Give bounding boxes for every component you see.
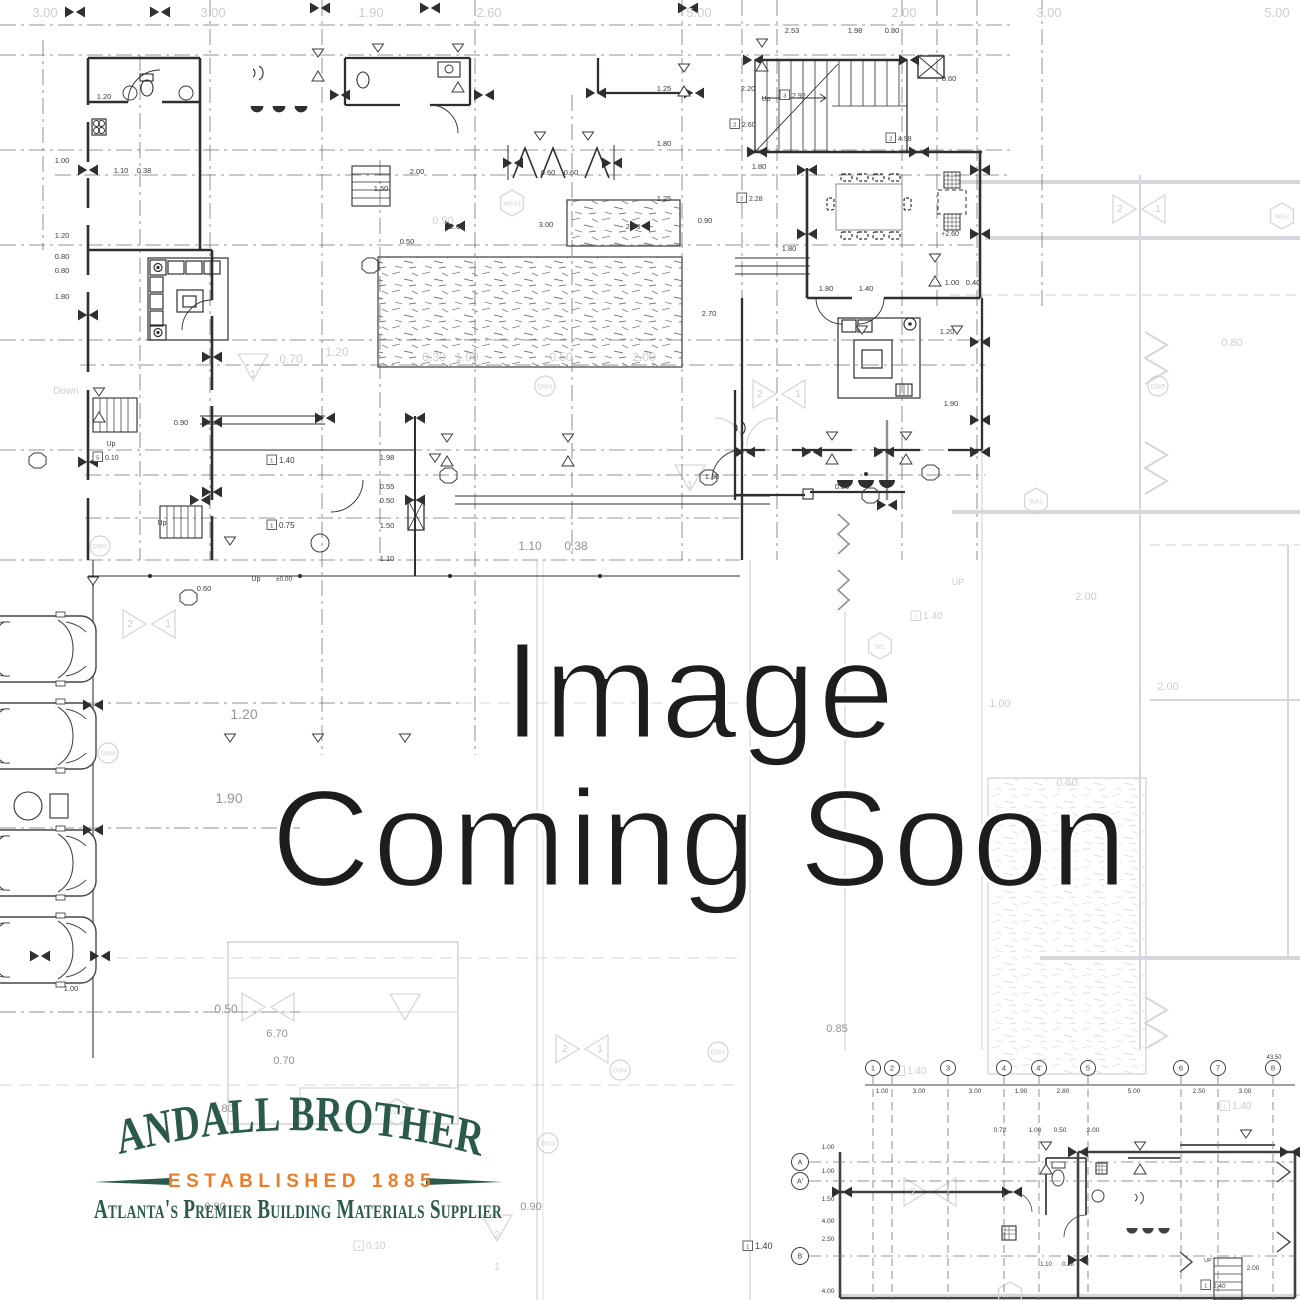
dimension-label: 3.00: [969, 1088, 982, 1095]
dimension-label: 0.38: [1062, 1262, 1074, 1268]
label-box-number: 1: [746, 1245, 749, 1251]
dimension-label: 1.90: [215, 790, 242, 806]
dimension-label: 2: [910, 1187, 916, 1198]
sitting-area-right: [838, 318, 920, 398]
logo-dash-left: [94, 1178, 170, 1185]
dimension-label: 6.70: [266, 1028, 287, 1040]
dimension-label: 1: [1155, 204, 1161, 215]
dimension-label: 1.80: [752, 162, 767, 171]
grid-column-label: 5: [1086, 1064, 1090, 1073]
dimension-label: 0.90: [698, 216, 713, 225]
dimension-label: 2.00: [1087, 1127, 1100, 1134]
logo: RANDALL BROTHERS ESTABLISHED 1885 Atlant…: [0, 0, 502, 1224]
dimension-label: 0.80: [1221, 337, 1242, 349]
placeholder-line-2: Coming Soon: [271, 762, 1129, 916]
grid-row-label: A': [797, 1179, 803, 1186]
dimension-label: 1.50: [380, 521, 395, 530]
dimension-label: 43.50: [1266, 1055, 1282, 1061]
dimension-label: 0.50: [549, 350, 573, 364]
dimension-label: 2.03: [450, 222, 465, 231]
grid-column-label: 4': [1036, 1064, 1042, 1073]
dimension-label: 4.00: [822, 1288, 835, 1295]
dimension-label: 2.60: [476, 5, 501, 20]
dimension-label: 0.60: [541, 168, 556, 177]
dimension-label: 1: [795, 389, 801, 400]
dimension-label: 2.20: [741, 84, 756, 93]
dimension-label: 1.00: [55, 156, 70, 165]
dimension-label: 1.00: [822, 1144, 835, 1151]
dimension-label: 1.40: [1232, 1101, 1252, 1112]
dimension-label: 1.80: [55, 292, 70, 301]
grid-column-label: 7: [1216, 1064, 1220, 1073]
dimension-label: 0.50: [1054, 1127, 1067, 1134]
label-box-number: 2: [889, 137, 892, 143]
dimension-label: 2.00: [891, 5, 916, 20]
grid-row-label: B: [798, 1254, 803, 1261]
dimension-label: 0.72: [994, 1127, 1007, 1134]
living-room-set: [148, 258, 228, 340]
dimension-label: 3.00: [913, 1088, 926, 1095]
dimension-label: 2.80: [1057, 1088, 1070, 1095]
grid-column-label: 4: [1002, 1064, 1006, 1073]
dimension-label: 1.40: [907, 1066, 927, 1077]
dimension-label: 0.70: [279, 352, 303, 366]
dimension-label: 1.40: [923, 611, 943, 622]
grid-column-label: 6: [1179, 1064, 1183, 1073]
dimension-label: 0.10: [105, 455, 119, 462]
dimension-label: 0.85: [826, 1023, 847, 1035]
dimension-label: 3.00: [539, 220, 554, 229]
dimension-label: 1.40: [755, 1241, 773, 1251]
dimension-label: 0.50: [380, 496, 395, 505]
dimension-label: 2: [757, 389, 763, 400]
dimension-label: 1.20: [55, 231, 70, 240]
dimension-label: 2.28: [749, 196, 763, 203]
zone-tag-label: WA2: [1275, 213, 1289, 220]
pendant-lights-secondary: [1126, 1228, 1169, 1234]
dimension-label: 0.30: [422, 350, 446, 364]
zone-tag-label: DW3: [541, 1140, 556, 1147]
dimension-label: 1: [494, 1262, 500, 1273]
dimension-label: 1.20: [940, 327, 955, 336]
dimension-label: 2.00: [1157, 681, 1178, 693]
dimension-label: 1.80: [819, 284, 834, 293]
dimension-label: 1.25: [657, 84, 672, 93]
label-box-number: 3: [783, 94, 786, 100]
zone-tag-label: WA4: [1003, 1292, 1017, 1299]
dimension-label: 0.38: [564, 539, 588, 553]
dimension-label: 1.30: [705, 472, 720, 481]
dimension-label: 2.70: [702, 309, 717, 318]
dimension-label: 0.38: [137, 166, 152, 175]
dimension-label: 1.00: [876, 1088, 889, 1095]
dimension-label: 1.10: [380, 554, 395, 563]
dimension-label: 1: [597, 1044, 603, 1055]
dimension-label: 2: [494, 1230, 500, 1241]
dimension-label: 0.55: [380, 482, 395, 491]
dimension-label: 2: [1117, 204, 1123, 215]
dimension-label: 2.00: [410, 167, 425, 176]
deck-hatch-small: [567, 200, 680, 246]
grid-column-label: 8: [1271, 1064, 1275, 1073]
label-box-number: 2: [740, 197, 743, 203]
dimension-label: UP: [1204, 1258, 1212, 1264]
dimension-label: 1.80: [657, 139, 672, 148]
placeholder-image: 3.003.001.902.605.002.003.005.000.700.30…: [0, 0, 1300, 1300]
dimension-label: Down: [53, 386, 79, 397]
dimension-label: 2.50: [822, 1236, 835, 1243]
dimension-label: 2.00: [1075, 591, 1096, 603]
dimension-label: 0.10: [366, 1241, 386, 1252]
dimension-label: 1: [687, 480, 693, 491]
label-box-number: 1: [914, 615, 917, 621]
dimension-label: 1.10: [114, 166, 129, 175]
dimension-label: 1.98: [848, 26, 863, 35]
logo-tagline: Atlanta's Premier Building Materials Sup…: [94, 1194, 502, 1224]
label-box-number: 4: [357, 1245, 360, 1251]
dimension-label: 4.00: [822, 1218, 835, 1225]
dimension-label: 0.50: [214, 1002, 238, 1016]
logo-established: ESTABLISHED 1885: [168, 1171, 436, 1192]
grid-row-label: A: [798, 1160, 803, 1167]
dimension-label: 2.60: [742, 122, 756, 129]
dimension-label: 1.10: [518, 539, 542, 553]
dimension-label: 3.00: [1036, 5, 1061, 20]
dimension-label: 1.25: [657, 194, 672, 203]
dimension-label: 1.00: [945, 278, 960, 287]
dimension-label: 0.90: [520, 1201, 541, 1213]
dimension-label: 2: [127, 619, 133, 630]
dimension-label: 1.20: [230, 706, 257, 722]
label-box-number: 1: [270, 459, 273, 465]
logo-dash-right: [426, 1178, 502, 1185]
placeholder-line-1: Image: [503, 614, 897, 768]
dimension-label: 2.00: [632, 350, 656, 364]
zone-tag-label: DW4: [613, 1067, 628, 1074]
dimension-label: 3.00: [1239, 1088, 1252, 1095]
dimension-label: 0.90: [174, 418, 189, 427]
dimension-label: Up: [252, 576, 261, 583]
grid-column-label: 1: [871, 1064, 875, 1073]
staircase: [755, 60, 907, 152]
blueprint-background: 3.003.001.902.605.002.003.005.000.700.30…: [0, 0, 1300, 1300]
dining-room: [748, 152, 982, 324]
dimension-label: 0.75: [279, 521, 295, 530]
dimension-label: 0.60: [942, 74, 957, 83]
label-box-number: 1: [270, 524, 273, 530]
dimension-label: 1.90: [944, 399, 959, 408]
dimension-label: UP: [952, 577, 965, 587]
label-box-number: 1: [1223, 1105, 1226, 1111]
dimension-label: 1.40: [279, 456, 295, 465]
dimension-label: 1: [250, 369, 256, 380]
dimension-label: 0.40: [966, 278, 981, 287]
dimension-label: Up: [158, 520, 167, 527]
dimension-label: 1.00: [989, 698, 1010, 710]
label-box-number: 1: [1204, 1284, 1207, 1290]
dimension-label: 0.60: [197, 584, 212, 593]
dimension-label: 5.00: [1264, 5, 1289, 20]
parked-cars: [0, 612, 96, 987]
dimension-label: 1.10: [1040, 1262, 1052, 1268]
dimension-label: 0.80: [55, 266, 70, 275]
dimension-label: 4.98: [898, 136, 912, 143]
dimension-label: +2.60: [941, 231, 959, 238]
dimension-label: 1.00: [822, 1168, 835, 1175]
dimension-label: 2: [562, 1044, 568, 1055]
dimension-label: 1.50: [822, 1196, 835, 1203]
dimension-label: 2.92: [792, 93, 806, 100]
zone-tag-label: DW8: [1151, 383, 1166, 390]
zone-tag-label: DW3: [93, 543, 108, 550]
dimension-label: 3.00: [200, 5, 225, 20]
zone-tag-label: WA2: [1029, 498, 1043, 505]
dimension-label: 1.50: [374, 184, 389, 193]
dimension-label: Up: [107, 441, 116, 448]
dimension-label: 1.98: [380, 453, 395, 462]
grid-column-label: 2: [890, 1064, 894, 1073]
dimension-label: 1.00: [64, 984, 79, 993]
dimension-label: 2.40: [1213, 1283, 1226, 1290]
dimension-label: 5.00: [686, 5, 711, 20]
grid-column-label: 3: [946, 1064, 950, 1073]
dimension-label: 1.20: [97, 92, 112, 101]
dimension-label: 1: [165, 619, 171, 630]
dimension-label: 1.90: [1015, 1088, 1028, 1095]
dimension-label: 1.20: [325, 345, 349, 359]
dimension-label: 2.50: [1193, 1088, 1206, 1095]
dimension-label: 0.50: [400, 237, 415, 246]
zone-tag-label: DW4: [538, 383, 553, 390]
zone-tag-label: WA13: [503, 200, 521, 207]
dimension-label: 2.00: [1247, 1265, 1260, 1272]
dimension-label: 0.80: [885, 26, 900, 35]
dimension-label: 5.00: [1128, 1088, 1141, 1095]
dimension-label: 0.60: [564, 168, 579, 177]
dimension-label: 1.00: [455, 350, 479, 364]
zone-tag-label: DW1: [711, 1049, 726, 1056]
placeholder-text: Image Coming Soon: [271, 614, 1129, 916]
dimension-label: 3.00: [32, 5, 57, 20]
dimension-label: 1.90: [358, 5, 383, 20]
dimension-label: 0.70: [273, 1055, 294, 1067]
dimension-label: ±0.00: [276, 576, 293, 583]
label-box-number: 5: [96, 456, 99, 462]
label-box-number: 2: [733, 123, 736, 129]
dimension-label: 2.53: [785, 26, 800, 35]
zone-tag-label: DW4: [101, 750, 116, 757]
dimension-label: 1.00: [1029, 1127, 1042, 1134]
dimension-label: Up: [762, 96, 771, 103]
dimension-label: 1.40: [859, 284, 874, 293]
dimension-label: 0.80: [55, 252, 70, 261]
dimension-label: 1.80: [782, 244, 797, 253]
dimension-label: 0.80: [835, 482, 850, 491]
dimension-label: 2.03: [626, 222, 641, 231]
